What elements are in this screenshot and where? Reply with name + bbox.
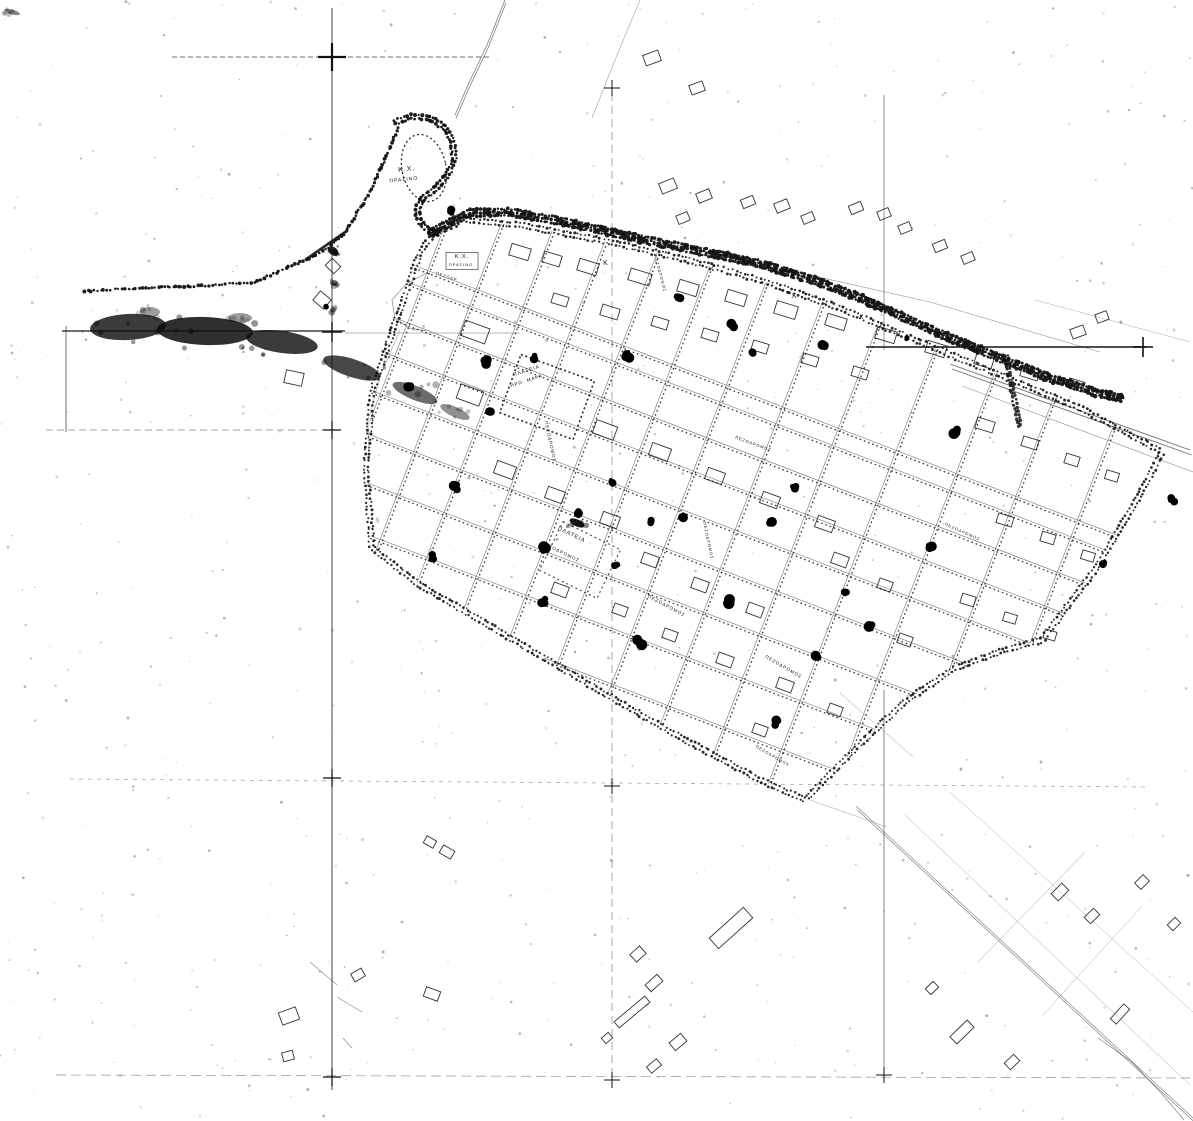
district-boundary-bead <box>402 309 404 311</box>
avenue-tree-band-bead <box>519 209 522 212</box>
building-outline <box>676 212 690 225</box>
coast-bead <box>174 285 178 289</box>
noise-dot <box>327 960 329 962</box>
ink-speck <box>447 404 451 408</box>
building-outline <box>691 577 710 593</box>
hook-bead <box>417 223 419 225</box>
building-outline <box>612 603 629 617</box>
building-outline <box>641 552 660 568</box>
district-boundary-bead <box>471 617 473 619</box>
noise-dot <box>214 959 216 961</box>
district-boundary-bead <box>428 242 430 244</box>
building-outline <box>1064 453 1080 467</box>
noise-dot <box>14 1048 17 1051</box>
district-boundary-bead <box>416 585 419 588</box>
coast-bead <box>228 282 230 284</box>
map-canvas: Κ.Χ.ΠΡΑΣΙΝΟΚ.Χ.ΠΡΑΣΙΝΟΠΕΖΟΔΡ.ΠΛΑΤΕΙΑΗΡΩ.… <box>0 0 1193 1121</box>
avenue-tree-band-bead <box>510 213 514 217</box>
district-boundary-bead <box>383 363 386 366</box>
district-boundary-bead <box>817 302 819 304</box>
district-boundary-bead <box>363 459 365 461</box>
noise-dot <box>727 91 729 93</box>
district-boundary-bead <box>802 291 805 294</box>
coast-bead <box>372 185 375 188</box>
district-boundary-bead <box>898 704 900 706</box>
avenue-tree-band-bead <box>924 329 927 332</box>
district-boundary-bead <box>841 306 844 309</box>
district-boundary-bead <box>486 621 489 624</box>
noise-dot <box>79 651 80 652</box>
noise-dot <box>110 641 111 642</box>
noise-dot <box>190 1009 192 1011</box>
district-boundary-bead <box>657 726 659 728</box>
tree-icon <box>723 598 734 609</box>
noise-dot <box>101 914 103 916</box>
noise-dot <box>451 732 452 733</box>
district-boundary-bead <box>773 788 775 790</box>
district-boundary-bead <box>932 685 935 688</box>
district-boundary-bead <box>791 796 793 798</box>
district-boundary-bead <box>767 786 770 789</box>
noise-dot <box>1184 770 1185 771</box>
avenue-tree-band-bead <box>880 310 883 313</box>
side-band-bead <box>1008 367 1011 370</box>
noise-dot <box>282 134 283 135</box>
district-boundary-bead <box>431 232 433 234</box>
noise-dot <box>998 984 999 985</box>
avenue-tree-band-bead <box>704 253 707 256</box>
district-boundary-bead <box>461 220 463 222</box>
noise-dot <box>131 893 134 896</box>
avenue-tree-band-bead <box>668 240 671 243</box>
district-boundary-bead <box>923 345 925 347</box>
noise-dot <box>1106 670 1108 672</box>
district-boundary-bead <box>1019 643 1022 646</box>
noise-dot <box>381 957 383 959</box>
noise-dot <box>1086 1027 1087 1028</box>
road-line <box>810 800 887 827</box>
tree-icon <box>532 353 538 359</box>
district-boundary-bead <box>1040 642 1042 644</box>
noise-dot <box>1107 110 1110 113</box>
avenue-tree-band-bead <box>443 222 446 225</box>
district-boundary-bead <box>535 650 537 652</box>
noise-dot <box>887 991 888 992</box>
ink-speck <box>249 345 255 351</box>
map-label: ΠΡΑΣΙΝΟ <box>389 176 418 185</box>
district-boundary-bead <box>369 438 371 440</box>
noise-dot <box>322 1115 325 1118</box>
avenue-tree-band-bead <box>785 267 788 270</box>
noise-dot <box>514 320 517 323</box>
noise-dot <box>909 428 910 429</box>
district-boundary-bead <box>469 611 471 613</box>
district-boundary-bead <box>366 429 369 432</box>
hook-bead <box>450 163 452 165</box>
district-boundary-bead <box>1102 421 1105 424</box>
noise-dot <box>310 35 311 36</box>
avenue-tree-band-bead <box>999 361 1002 364</box>
noise-dot <box>1135 808 1136 809</box>
noise-dot <box>934 223 937 226</box>
avenue-tree-band-bead <box>471 214 474 217</box>
district-boundary-bead <box>368 471 370 473</box>
avenue-tree-band-bead <box>653 243 656 246</box>
district-boundary-bead <box>365 502 367 504</box>
noise-dot <box>694 570 697 573</box>
building-outline <box>801 212 815 225</box>
avenue-tree-band-bead <box>524 213 527 216</box>
district-boundary-bead <box>416 254 418 256</box>
hook-bead <box>423 228 426 231</box>
hook-bead <box>404 120 407 123</box>
road-line <box>343 1038 352 1048</box>
district-boundary-bead <box>1128 435 1131 438</box>
avenue-tree-band-bead <box>492 210 496 214</box>
district-boundary-bead <box>441 595 443 597</box>
avenue-tree-band-bead <box>1110 390 1114 394</box>
district-boundary-bead <box>445 596 447 598</box>
district-boundary-bead <box>1138 490 1141 493</box>
district-boundary-bead <box>1084 585 1086 587</box>
district-boundary-bead <box>872 319 874 321</box>
district-boundary-bead <box>827 778 829 780</box>
coast-bead <box>396 129 399 132</box>
noise-dot <box>1081 604 1082 605</box>
district-boundary-bead <box>1094 572 1097 575</box>
district-boundary-bead <box>877 723 879 725</box>
avenue-tree-band-bead <box>1023 369 1026 372</box>
district-boundary-bead <box>707 262 710 265</box>
noise-dot <box>1102 282 1104 284</box>
building-outline <box>898 222 912 235</box>
district-boundary-bead <box>406 571 409 574</box>
district-boundary-bead <box>469 217 472 220</box>
avenue-tree-band-bead <box>497 207 499 209</box>
side-band-bead <box>1015 398 1018 401</box>
district-boundary-bead <box>505 631 507 633</box>
district-boundary-bead <box>1112 543 1114 545</box>
district-boundary-bead <box>897 710 899 712</box>
district-boundary-bead <box>501 629 504 632</box>
noise-dot <box>730 447 731 448</box>
district-boundary-bead <box>465 217 467 219</box>
noise-dot <box>1132 1094 1134 1096</box>
ink-speck <box>458 406 464 412</box>
district-boundary-bead <box>420 245 423 248</box>
district-boundary-bead <box>1162 454 1165 457</box>
avenue-tree-band-bead <box>574 219 578 223</box>
district-boundary-bead <box>736 765 738 767</box>
avenue-tree-band-bead <box>546 217 549 220</box>
district-boundary-bead <box>687 262 690 265</box>
district-boundary-bead <box>368 399 371 402</box>
map-label: ΠΡΑΣΙΝΟ <box>449 262 474 267</box>
noise-dot <box>972 79 974 81</box>
noise-dot <box>92 150 95 153</box>
district-boundary-bead <box>1020 380 1023 383</box>
district-boundary-bead <box>1132 499 1135 502</box>
noise-dot <box>55 476 58 479</box>
avenue-tree-band-bead <box>897 317 899 319</box>
noise-dot <box>1066 44 1068 46</box>
noise-dot <box>548 562 549 563</box>
district-boundary-bead <box>775 784 777 786</box>
noise-dot <box>849 1028 851 1030</box>
noise-dot <box>524 462 525 463</box>
map-label: ΠΕΖΟΔΡΟΜΟΣ <box>702 521 715 560</box>
district-boundary-bead <box>579 680 581 682</box>
avenue-tree-band-bead <box>489 208 492 211</box>
district-boundary-bead <box>374 386 377 389</box>
noise-dot <box>745 8 746 9</box>
noise-dot <box>1045 922 1047 924</box>
district-boundary-bead <box>726 273 729 276</box>
district-boundary-bead <box>732 268 734 270</box>
district-boundary-bead <box>444 225 447 228</box>
tree-icon <box>542 596 548 602</box>
noise-dot <box>989 437 991 439</box>
noise-dot <box>1095 179 1097 181</box>
noise-dot <box>556 538 559 541</box>
noise-dot <box>808 752 810 754</box>
tree-icon <box>821 343 829 351</box>
noise-dot <box>52 221 53 222</box>
noise-dot <box>280 307 281 308</box>
noise-dot <box>190 415 192 417</box>
avenue-tree-band-bead <box>590 226 593 229</box>
avenue-tree-band-bead <box>663 245 666 248</box>
noise-dot <box>32 676 33 677</box>
district-boundary-bead <box>662 256 665 259</box>
noise-dot <box>918 505 920 507</box>
district-boundary-bead <box>642 250 644 252</box>
avenue-tree-band-bead <box>633 239 636 242</box>
district-boundary-bead <box>1091 569 1093 571</box>
district-boundary-bead <box>902 331 904 333</box>
noise-dot <box>54 685 56 687</box>
ink-speck <box>264 347 266 349</box>
noise-dot <box>242 231 244 233</box>
noise-dot <box>1135 391 1137 393</box>
road-line <box>1098 1038 1184 1120</box>
district-boundary-bead <box>775 287 778 290</box>
district-boundary-bead <box>939 351 942 354</box>
hook-bead <box>451 171 453 173</box>
noise-dot <box>1164 521 1166 523</box>
hook-bead <box>430 120 434 124</box>
noise-dot <box>265 388 266 389</box>
district-boundary-bead <box>981 658 984 661</box>
noise-dot <box>146 32 147 33</box>
district-boundary-bead <box>518 226 520 228</box>
district-boundary-bead <box>961 361 963 363</box>
district-boundary-bead <box>436 234 439 237</box>
coast-bead <box>386 152 389 155</box>
avenue-tree-band-bead <box>774 270 778 274</box>
district-boundary-bead <box>857 312 859 314</box>
district-boundary-bead <box>526 227 528 229</box>
coast-bead <box>327 247 329 249</box>
tree-icon <box>621 353 629 361</box>
district-boundary-bead <box>1132 434 1134 436</box>
coast-bead <box>293 262 297 266</box>
side-band-bead <box>1018 416 1021 419</box>
district-boundary-bead <box>410 580 412 582</box>
district-boundary-bead <box>844 762 846 764</box>
noise-dot <box>286 935 288 937</box>
street-edge <box>415 266 1116 535</box>
district-boundary-bead <box>1011 645 1013 647</box>
noise-dot <box>31 248 33 250</box>
building-outline <box>648 442 671 461</box>
district-boundary-bead <box>873 731 876 734</box>
noise-dot <box>702 232 703 233</box>
noise-dot <box>771 427 774 430</box>
noise-dot <box>979 1108 981 1110</box>
district-boundary-bead <box>964 357 966 359</box>
avenue-tree-band-bead <box>574 226 577 229</box>
district-boundary-bead <box>1119 520 1122 523</box>
noise-dot <box>742 845 744 847</box>
avenue-tree-band-bead <box>503 214 505 216</box>
district-boundary-bead <box>703 261 705 263</box>
district-boundary-bead <box>537 229 540 232</box>
noise-dot <box>91 1021 94 1024</box>
district-boundary-bead <box>968 664 971 667</box>
district-boundary-bead <box>369 497 372 500</box>
tree-icon <box>485 408 492 415</box>
noise-dot <box>818 21 820 23</box>
district-boundary-bead <box>365 513 367 515</box>
district-boundary-bead <box>368 492 371 495</box>
district-boundary-bead <box>419 587 422 590</box>
map-label: Κ.Χ. <box>455 254 469 260</box>
district-boundary-bead <box>367 469 369 471</box>
district-boundary-bead <box>467 609 470 612</box>
district-boundary-bead <box>576 237 578 239</box>
noise-dot <box>329 733 330 734</box>
district-boundary-bead <box>694 741 697 744</box>
side-band-bead <box>1011 395 1015 399</box>
district-boundary-bead <box>910 694 913 697</box>
district-boundary-bead <box>413 259 415 261</box>
noise-dot <box>34 719 36 721</box>
noise-dot <box>345 882 348 885</box>
hook-bead <box>427 115 431 119</box>
noise-dot <box>1179 397 1180 398</box>
district-boundary-bead <box>408 275 410 277</box>
district-boundary-bead <box>364 453 367 456</box>
ink-speck <box>240 315 245 320</box>
district-boundary-bead <box>677 732 679 734</box>
noise-dot <box>864 741 865 742</box>
noise-dot <box>561 371 563 373</box>
district-boundary-bead <box>366 432 368 434</box>
noise-dot <box>205 632 208 635</box>
district-boundary-bead <box>810 796 812 798</box>
district-boundary-bead <box>764 279 766 281</box>
district-boundary-bead <box>421 251 423 253</box>
district-boundary-bead <box>1063 604 1065 606</box>
noise-dot <box>1156 603 1158 605</box>
district-boundary-bead <box>368 485 371 488</box>
noise-dot <box>547 710 550 713</box>
side-band-bead <box>1013 407 1016 410</box>
noise-dot <box>467 477 470 480</box>
noise-dot <box>191 826 193 828</box>
noise-dot <box>844 907 847 910</box>
district-boundary-bead <box>677 254 680 257</box>
district-boundary-bead <box>435 231 437 233</box>
avenue-tree-band-bead <box>1100 389 1104 393</box>
hook-bead <box>424 223 427 226</box>
district-boundary-bead <box>962 667 965 670</box>
noise-dot <box>761 10 762 11</box>
district-boundary-bead <box>676 258 678 260</box>
district-boundary-bead <box>660 728 662 730</box>
district-boundary-bead <box>884 329 887 332</box>
noise-dot <box>348 990 349 991</box>
district-boundary-bead <box>479 219 481 221</box>
district-boundary-bead <box>751 274 754 277</box>
district-boundary-bead <box>731 766 734 769</box>
noise-dot <box>36 276 39 279</box>
district-boundary-bead <box>899 330 901 332</box>
district-boundary-bead <box>818 298 821 301</box>
noise-dot <box>5 19 6 20</box>
noise-dot <box>248 1084 251 1087</box>
avenue-tree-band-bead <box>435 225 438 228</box>
noise-dot <box>1054 686 1056 688</box>
noise-dot <box>11 352 14 355</box>
district-boundary-bead <box>452 221 454 223</box>
coast-bead <box>179 285 182 288</box>
district-boundary-bead <box>740 272 742 274</box>
scanned-map-page: Κ.Χ.ΠΡΑΣΙΝΟΚ.Χ.ΠΡΑΣΙΝΟΠΕΖΟΔΡ.ΠΛΑΤΕΙΑΗΡΩ.… <box>0 0 1193 1121</box>
district-boundary-bead <box>473 613 475 615</box>
noise-dot <box>1057 423 1058 424</box>
district-boundary-bead <box>631 248 633 250</box>
noise-dot <box>294 7 297 10</box>
noise-dot <box>1183 119 1186 122</box>
noise-dot <box>521 806 522 807</box>
district-boundary-bead <box>447 222 450 225</box>
noise-dot <box>637 368 640 371</box>
noise-dot <box>399 666 401 668</box>
district-boundary-bead <box>1067 601 1069 603</box>
district-boundary-bead <box>1036 638 1038 640</box>
noise-dot <box>862 425 864 427</box>
avenue-tree-band-bead <box>532 219 535 222</box>
district-boundary-bead <box>369 442 372 445</box>
district-boundary-bead <box>849 309 851 311</box>
coast-bead <box>144 286 148 290</box>
avenue-tree-band-bead <box>452 222 456 226</box>
noise-dot <box>3 583 4 584</box>
noise-dot <box>1045 680 1047 682</box>
noise-dot <box>1098 365 1099 366</box>
district-boundary-bead <box>801 795 803 797</box>
coast-bead <box>218 284 221 287</box>
avenue-tree-band-bead <box>600 232 603 235</box>
district-boundary-bead <box>953 352 956 355</box>
ink-speck <box>131 340 136 345</box>
district-boundary-bead <box>1097 413 1100 416</box>
noise-dot <box>396 1017 398 1019</box>
coast-bead <box>123 287 126 290</box>
district-boundary-bead <box>389 559 391 561</box>
